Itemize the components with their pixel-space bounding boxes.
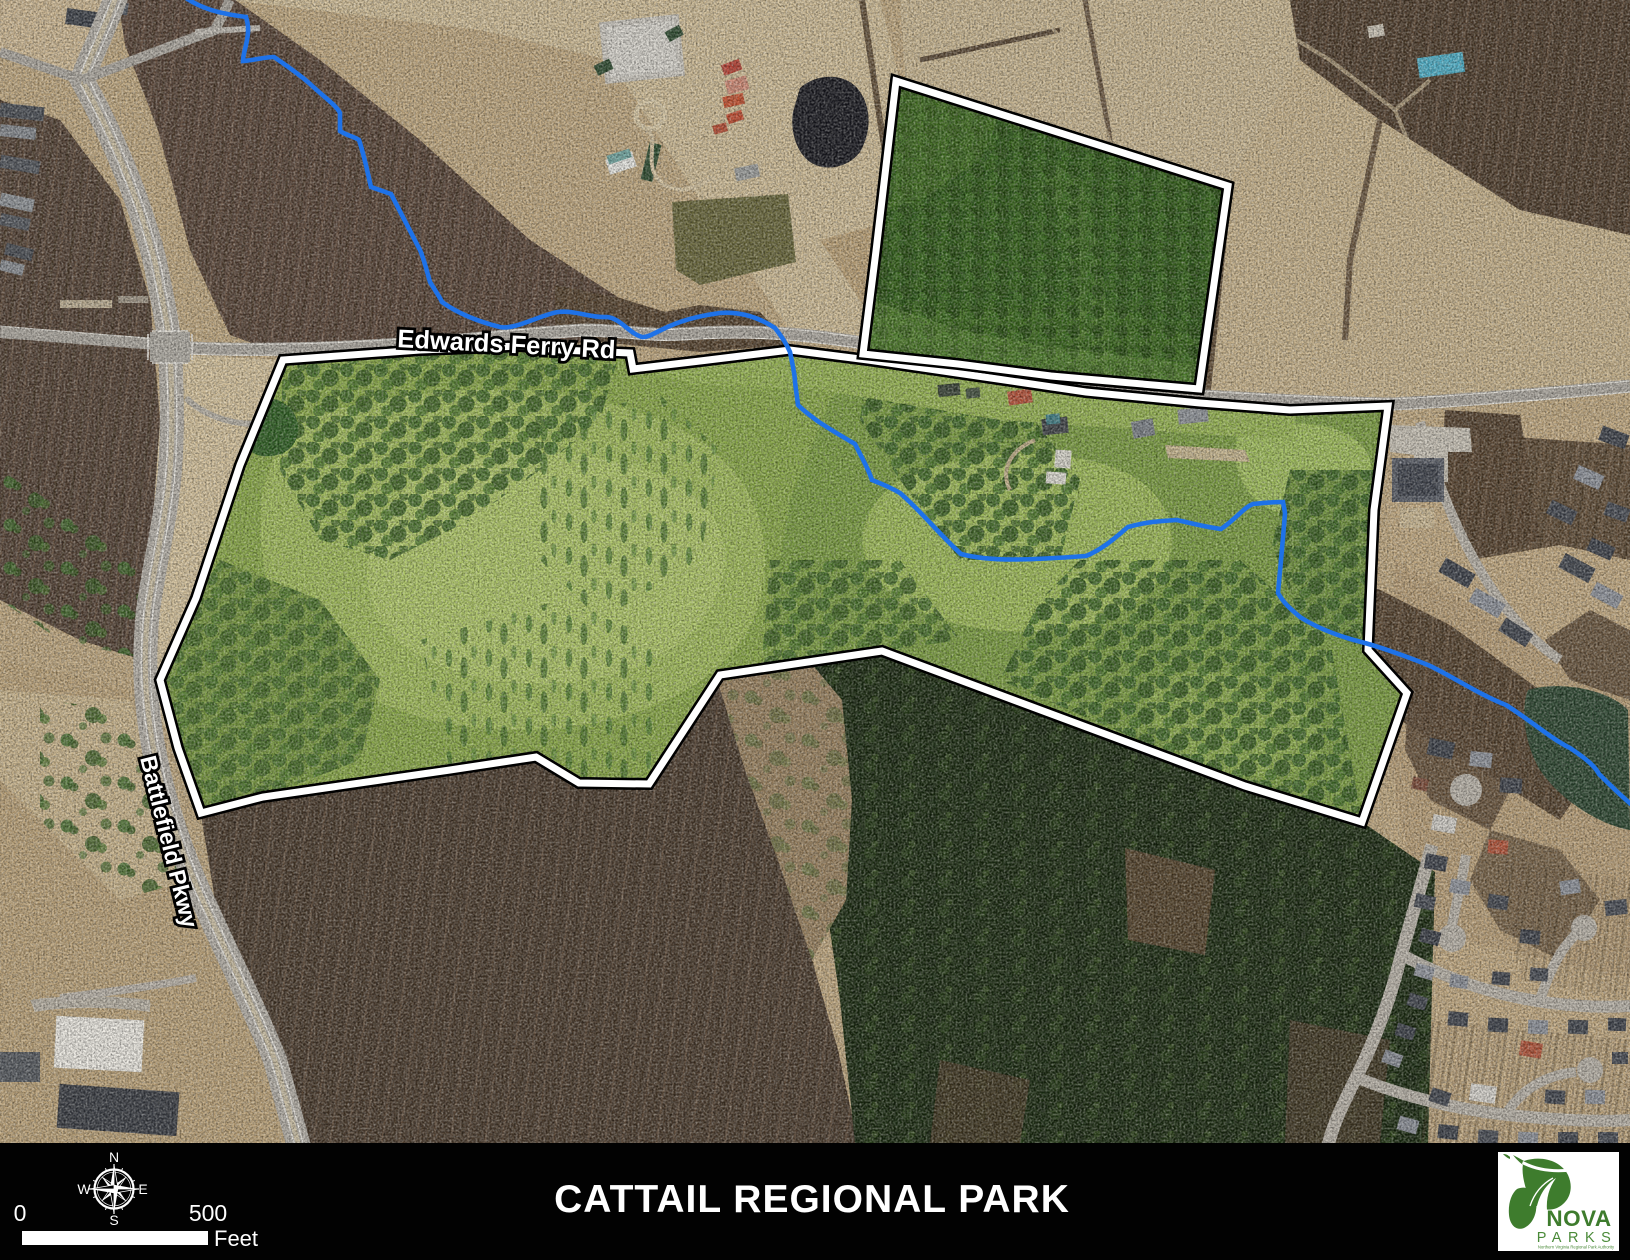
svg-text:W: W: [77, 1181, 91, 1197]
svg-text:Feet: Feet: [214, 1226, 258, 1251]
svg-text:0: 0: [14, 1200, 27, 1226]
svg-text:CATTAIL REGIONAL PARK: CATTAIL REGIONAL PARK: [554, 1178, 1070, 1221]
svg-text:S: S: [109, 1212, 118, 1228]
svg-text:NOVA: NOVA: [1546, 1206, 1611, 1231]
svg-text:500: 500: [189, 1200, 227, 1226]
svg-text:E: E: [138, 1181, 147, 1197]
svg-text:N: N: [109, 1149, 119, 1165]
svg-text:Northern Virginia Regional Par: Northern Virginia Regional Park Authorit…: [1538, 1245, 1615, 1250]
